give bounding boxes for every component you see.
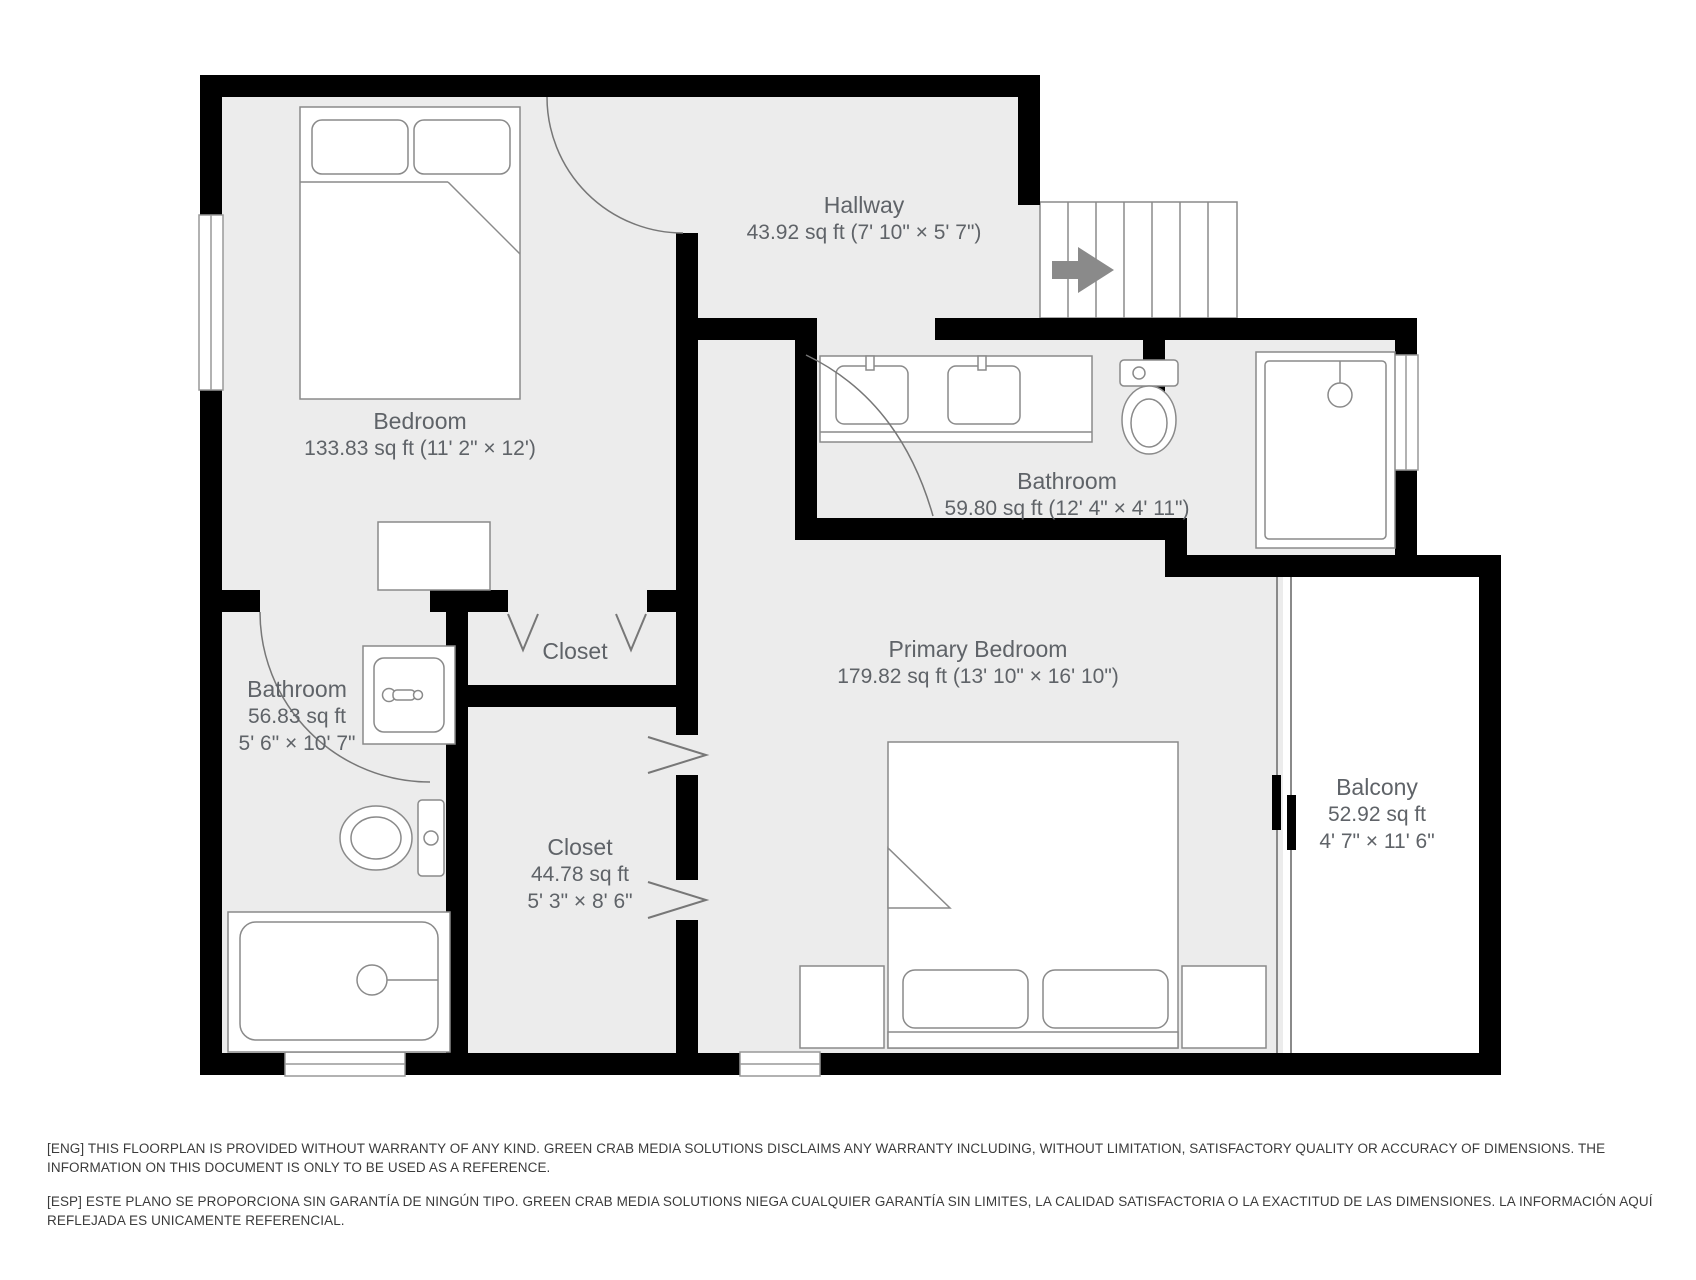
double-vanity	[820, 356, 1092, 442]
room-name: Closet	[542, 638, 607, 665]
room-label-balcony: Balcony 52.92 sq ft 4' 7" × 11' 6"	[1319, 774, 1434, 855]
room-name: Bathroom	[239, 676, 356, 703]
room-name: Balcony	[1319, 774, 1434, 801]
room-dims: 43.92 sq ft (7' 10" × 5' 7")	[747, 219, 982, 246]
pillow	[414, 120, 510, 174]
room-label-bedroom: Bedroom 133.83 sq ft (11' 2" × 12')	[304, 408, 536, 462]
room-label-closet-upper: Closet	[542, 638, 607, 665]
shower	[1256, 352, 1395, 548]
headboard	[888, 1032, 1178, 1048]
pillow	[903, 970, 1028, 1028]
stairs	[1040, 202, 1237, 318]
room-dims: 133.83 sq ft (11' 2" × 12')	[304, 435, 536, 462]
room-name: Hallway	[747, 192, 982, 219]
room-dims: 5' 3" × 8' 6"	[527, 888, 632, 915]
vanity-sink	[363, 646, 455, 744]
room-dims: 4' 7" × 11' 6"	[1319, 828, 1434, 855]
floorplan-page: Bedroom 133.83 sq ft (11' 2" × 12') Hall…	[0, 0, 1696, 1280]
disclaimer-english: [ENG] THIS FLOORPLAN IS PROVIDED WITHOUT…	[47, 1140, 1659, 1177]
room-label-primary-bedroom: Primary Bedroom 179.82 sq ft (13' 10" × …	[837, 636, 1119, 690]
room-label-bathroom-left: Bathroom 56.83 sq ft 5' 6" × 10' 7"	[239, 676, 356, 757]
disclaimer-spanish: [ESP] ESTE PLANO SE PROPORCIONA SIN GARA…	[47, 1193, 1659, 1230]
room-name: Primary Bedroom	[837, 636, 1119, 663]
room-area: 44.78 sq ft	[527, 861, 632, 888]
pillow	[1043, 970, 1168, 1028]
bedroom-dresser	[378, 522, 490, 590]
room-dims: 179.82 sq ft (13' 10" × 16' 10")	[837, 663, 1119, 690]
nightstand	[1182, 966, 1266, 1048]
room-area: 52.92 sq ft	[1319, 801, 1434, 828]
room-name: Closet	[527, 834, 632, 861]
toilet	[1120, 360, 1178, 454]
toilet	[340, 800, 444, 876]
room-dims: 5' 6" × 10' 7"	[239, 730, 356, 757]
room-label-hallway: Hallway 43.92 sq ft (7' 10" × 5' 7")	[747, 192, 982, 246]
room-name: Bathroom	[945, 468, 1190, 495]
room-label-bathroom-main: Bathroom 59.80 sq ft (12' 4" × 4' 11")	[945, 468, 1190, 522]
bathtub	[228, 912, 450, 1052]
room-label-closet-lower: Closet 44.78 sq ft 5' 3" × 8' 6"	[527, 834, 632, 915]
room-area: 56.83 sq ft	[239, 703, 356, 730]
nightstand	[800, 966, 884, 1048]
room-dims: 59.80 sq ft (12' 4" × 4' 11")	[945, 495, 1190, 522]
room-name: Bedroom	[304, 408, 536, 435]
bedroom-bed	[300, 107, 520, 399]
pillow	[312, 120, 408, 174]
